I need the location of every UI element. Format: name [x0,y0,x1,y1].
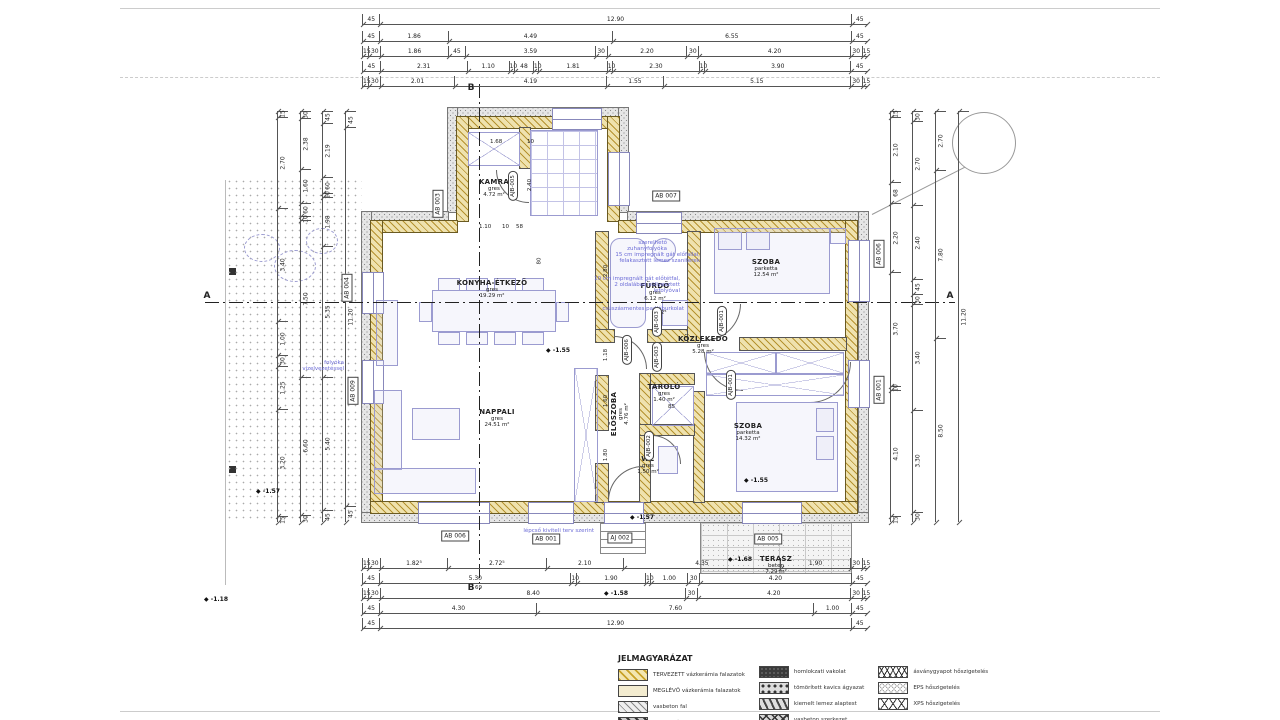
legend-label: kiemelt lemez alaptest [794,701,857,707]
dimension-segment: 45 [448,46,465,56]
door-tag: AJB-002 [644,431,654,461]
nightstand [830,228,846,244]
dimension-segment: 2.20 [891,203,901,271]
room-area: 12.54 m² [752,272,780,278]
level-marker: ◆ -1.58 [604,590,628,597]
dimension-segment: 1.10 [467,61,509,71]
legend-row: kiemelt lemez alaptest [759,698,864,710]
dimension-segment: 4.20 [697,588,850,598]
room-area: 6.12 m² [640,296,669,302]
dimension-value: 15 [863,48,868,55]
inline-dimension: 1.68 [490,139,502,145]
dimension-value: 15 [863,78,868,85]
legend-row: vasbeton fal [618,701,745,713]
dimension-value: 2.70 [280,156,287,169]
opening-tag: AB 009 [348,377,359,405]
gravel-swatch-icon [759,682,789,694]
dimension-segment: 3.70 [891,272,901,386]
dimension-segment: 1.82⁵ [380,558,447,568]
sofa [374,390,402,470]
dimension-segment: 30 [687,573,699,583]
dimension-value: 7.60 [537,605,813,612]
dimension-segment: 6.55 [612,31,851,41]
dimension-segment: 2.38 [301,118,311,168]
dimension-value: 12.90 [380,16,850,23]
inline-dimension: 85 [668,404,675,410]
door-tag: AJB-003 [652,342,662,372]
dimension-value: 30 [851,78,862,85]
opening-tag: AB 007 [652,191,680,202]
inline-dimension: 10 [527,139,534,145]
legend: JELMAGYARÁZAT TERVEZETT vázkerámia falaz… [618,654,988,720]
back-door [848,360,870,408]
legend-label: XPS hőszigetelés [913,701,960,707]
dimension-value: 6.55 [613,33,851,40]
dimension-value: 45 [363,16,379,23]
dimension-segment: 12.90 [379,618,850,628]
dimension-value: 45 [348,511,355,519]
dimension-value: 8.50 [938,424,945,437]
dimension-value: 45 [325,513,332,521]
interior-wall [740,338,846,350]
dimension-chain-vertical: 302.381.6060107.506.6030 [300,111,311,522]
dimension-segment: 30 [368,46,380,56]
room-area: 1.40 m² [648,397,681,403]
window [636,212,682,234]
dimension-value: 30 [688,575,699,582]
room-area: 4.76 m² [624,392,630,436]
dimension-value: 1.10 [468,63,509,70]
dimension-segment: 3.40 [913,304,923,409]
dimension-segment: 48 [514,61,533,71]
dimension-segment: 1.86 [380,46,448,56]
dimension-segment: 2.40 [913,205,923,280]
interior-wall [688,232,700,342]
dimension-segment: 15 [891,516,901,522]
door-tag: AJB-005 [508,171,518,201]
dimension-segment: 7.60 [536,603,813,613]
window [528,502,574,524]
dimension-chain-vertical: 302.702.4045303.403.3030 [912,111,923,522]
dimension-segment: 30 [913,512,923,522]
room-area: 19.29 m² [457,293,528,299]
dimension-segment: 30 [850,76,862,86]
dimension-value: 1.82⁵ [381,560,447,567]
chair [522,332,544,345]
door-tag: AJB-001 [717,306,727,336]
room-name: KAMRA [479,178,509,186]
dimension-value: 5.40 [325,438,332,451]
gray-hatch-swatch-icon [618,701,648,713]
dimension-segment: 45 [362,618,379,628]
dimension-segment: 6.60 [301,377,311,515]
dimension-segment: 30 [368,558,380,568]
dimension-value: 2.40 [915,236,922,249]
pantry-shelf [468,132,520,166]
tree-sketch-icon [244,234,280,262]
legend-label: ásványgyapot hőszigetelés [913,669,988,675]
dimension-segment: 45 [346,506,356,522]
dimension-segment: 30 [686,46,698,56]
dimension-value: 2.31 [381,63,467,70]
dimension-segment: 30 [368,76,380,86]
dimension-value: 15 [863,560,868,567]
dimension-value: 6.60 [303,440,310,453]
chair [494,332,516,345]
dimension-value: 4.49 [449,33,612,40]
dimension-value: 45 [363,63,380,70]
dimension-segment: 30 [301,515,311,522]
room-area: 1.50 m² [637,469,659,475]
section-mark: B [468,583,475,593]
window [552,108,602,130]
dimension-value: 45 [363,620,379,627]
chair [556,302,569,322]
coffee-table [412,408,460,440]
dimension-segment: 2.70 [913,121,923,205]
dimension-chain-horizontal: 451.864.496.5545 [362,31,868,42]
dimension-value: 30 [369,560,380,567]
dimension-chain-vertical: 4511.2045 [345,111,356,522]
legend-column-1: JELMAGYARÁZAT TERVEZETT vázkerámia falaz… [618,654,745,720]
interior-wall [694,392,704,502]
dimension-value: 45 [852,575,868,582]
dimension-segment: 1.00 [278,321,288,355]
dimension-segment: 11.20 [959,111,969,522]
dimension-value: 30 [915,514,922,522]
room-label: ELŐSZOBAgres4.76 m² [610,392,630,436]
dimension-segment: 2.70 [936,111,946,170]
pillow [816,436,834,460]
section-mark: A [204,291,211,301]
dimension-value: 60 [325,182,332,190]
dimension-value: 30 [369,590,380,597]
dimension-segment: 4.10 [891,390,901,516]
legend-label: homlokzati vakolat [794,669,846,675]
legend-column-3: ásványgyapot hőszigetelésEPS hőszigetelé… [878,654,988,720]
dimension-chain-horizontal: 454.307.601.0045 [362,603,868,614]
section-mark: A [947,291,954,301]
dimension-value: 3.59 [466,48,595,55]
dimension-value: 30 [596,48,607,55]
dimension-segment: 1.55 [606,76,663,86]
dimension-segment: 5.30 [379,573,570,583]
dimension-value: 1.55 [607,78,663,85]
dimension-value: 45 [851,63,868,70]
chair [419,302,432,322]
dimension-segment: 45 [362,573,379,583]
dimension-segment: 3.30 [913,410,923,512]
dimension-value: 2.20 [608,48,687,55]
dimension-segment: 15 [278,516,288,522]
room-label: KONYHA-ÉTKEZŐgres19.29 m² [457,279,528,299]
dimension-segment: 5.40 [323,377,333,510]
room-label: TERASZbeton7.29 m² [760,555,792,575]
dimension-value: 45 [348,116,355,124]
dimension-segment: 3.20 [278,409,288,516]
door-tag: AJB-003 [652,307,662,337]
dimension-value: 1.90 [577,575,645,582]
dimension-segment: 2.10 [891,117,901,182]
dimension-segment: 45 [851,618,868,628]
dimension-segment: 1.00 [813,603,850,613]
room-label: SZOBAparketta14.32 m² [734,422,762,442]
level-marker: ◆ -1.55 [744,477,768,484]
dimension-segment: 45 [362,603,379,613]
xps-swatch-icon [878,698,908,710]
dimension-segment: 30 [368,588,380,598]
dimension-segment: 2.72⁵ [447,558,546,568]
dimension-value: 2.70 [915,157,922,170]
inline-dimension: 1.10 [479,224,491,230]
dimension-segment: 2.70 [278,117,288,208]
wool-swatch-icon [878,666,908,678]
toilet [658,446,678,474]
dimension-segment: 5.35 [323,246,333,377]
legend-row: MEGLÉVŐ vázkerámia falazatok [618,685,745,697]
dimension-value: 2.70 [938,134,945,147]
dimension-value: 3.70 [893,322,900,335]
diag-dark-swatch-icon [759,698,789,710]
paper-edge-top [120,8,1160,9]
room-name: TERASZ [760,555,792,563]
dimension-value: 4.20 [698,590,850,597]
dimension-value: 2.19 [325,144,332,157]
dimension-segment: 4.49 [448,31,612,41]
dimension-segment: 1.98 [323,197,333,246]
dimension-value: 2.10 [547,560,623,567]
dimension-segment: 45 [851,573,868,583]
legend-title: JELMAGYARÁZAT [618,654,745,663]
dimension-value: 3.40 [280,258,287,271]
dimension-value: 2.38 [303,137,310,150]
dimension-chain-horizontal: 4512.9045 [362,618,868,629]
dimension-value: 3.40 [915,351,922,364]
opening-tag: AB 001 [874,376,885,404]
dimension-chain-vertical: 152.10682.203.70104.1015 [890,111,901,522]
dimension-segment: 45 [323,510,333,522]
level-marker: ◆ -1.57 [256,488,280,495]
dimension-segment: 7.80 [936,170,946,339]
dimension-value: 2.01 [381,78,454,85]
dimension-value: 4.10 [893,447,900,460]
dimension-value: 5.35 [325,306,332,319]
dimension-chain-horizontal: 4512.9045 [362,14,868,25]
door-tag: AJB-001 [726,370,736,400]
dimension-value: 45 [363,33,379,40]
dimension-chain-vertical: 152.703.401.00301.253.2015 [277,111,288,522]
opening-tag: AB 004 [342,274,353,302]
dimension-chain-horizontal: 452.311.101048101.81102.30103.9045 [362,61,868,72]
room-name: NAPPALI [479,408,514,416]
window [848,240,870,302]
dimension-value: 4.19 [455,78,606,85]
legend-row: XPS hőszigetelés [878,698,988,710]
annotation-note: folyóka vízelvezetéssel [286,360,344,372]
dimension-segment: 1.00 [650,573,687,583]
dimension-segment: 4.30 [379,603,536,613]
room-name: TÁROLÓ [648,383,681,391]
dimension-segment: 45 [850,61,868,71]
dimension-value: 1.86 [380,33,448,40]
dimension-value: 30 [686,590,697,597]
legend-label: vasbeton fal [653,704,687,710]
room-area: 5.28 m² [678,349,728,355]
dimension-segment: 7.50 [301,220,311,377]
dimension-segment: 30 [850,558,862,568]
dimension-value: 45 [363,605,379,612]
opening-tag: AB 003 [433,190,444,218]
annotation-note: szerelhető zuhanyfolyóka [597,240,667,252]
dimension-value: 1.81 [539,63,606,70]
tv-cabinet [376,300,398,366]
dimension-segment: 1.86 [379,31,448,41]
room-name: SZOBA [734,422,762,430]
dimension-segment: 15 [862,76,868,86]
legend-column-2: homlokzati vakolattömörített kavics ágya… [759,654,864,720]
dimension-value: 45 [852,33,868,40]
dimension-segment: 2.31 [380,61,467,71]
dimension-value: 12.90 [380,620,850,627]
room-label: TÁROLÓgres1.40 m² [648,383,681,403]
built-in-wardrobe [574,368,598,502]
opening-tag: AB 006 [874,240,885,268]
garden-paving [226,178,362,520]
legend-label: MEGLÉVŐ vázkerámia falazatok [653,688,741,694]
dimension-value: 5.15 [664,78,850,85]
legend-row: ásványgyapot hőszigetelés [878,666,988,678]
section-line-a [205,302,955,303]
dimension-value: 4.30 [380,605,536,612]
dimension-value: 30 [851,560,862,567]
dimension-segment: 4.19 [454,76,606,86]
interior-wall [596,330,614,342]
opening-tag: AJ 002 [607,533,632,544]
room-area: 24.51 m² [479,422,514,428]
dimension-segment: 8.50 [936,338,946,522]
dimension-value: 45 [363,575,379,582]
legend-row: EPS hőszigetelés [878,682,988,694]
dimension-segment: 45 [851,603,868,613]
dimension-value: 30 [369,48,380,55]
dimension-segment: 3.90 [704,61,850,71]
window [608,152,630,206]
kitchen-counter [530,130,598,216]
dimension-segment: 2.19 [323,123,333,177]
room-name: SZOBA [752,258,780,266]
dimension-segment: 30 [595,46,607,56]
dimension-value: 68 [893,189,900,197]
dimension-value: 3.90 [705,63,850,70]
dimension-value: 8.40 [381,590,685,597]
door-tag: AJB-006 [622,335,632,365]
window [742,502,802,524]
dimension-value: 15 [280,516,287,524]
wall-insulation [448,108,457,212]
dimension-segment: 8.40 [380,588,685,598]
yellow-hatch-swatch-icon [618,669,648,681]
legend-label: TERVEZETT vázkerámia falazatok [653,672,745,678]
pillow [746,232,770,250]
dimension-segment: 1.60 [301,169,311,203]
dimension-segment: 2.30 [612,61,699,71]
dimension-value: 45 [915,284,922,292]
dimension-chain-horizontal: 15301.86453.59302.20304.203015 [362,46,868,57]
opening-tag: AB 001 [532,534,560,545]
dimension-chain-vertical: 2.707.808.50 [935,111,946,522]
legend-row: homlokzati vakolat [759,666,864,678]
dimension-segment: 45 [851,31,868,41]
chair [438,332,460,345]
dimension-value: 30 [369,78,380,85]
pillow [718,232,742,250]
inline-dimension: 1.80 [603,449,609,461]
dimension-value: 11.20 [961,308,968,325]
beige-swatch-icon [618,685,648,697]
dimension-value: 15 [893,516,900,524]
dimension-value: 30 [687,48,698,55]
dimension-value: 2.20 [893,231,900,244]
room-label: SZOBAparketta12.54 m² [752,258,780,278]
dimension-segment: 5.15 [663,76,850,86]
dimension-segment: 45 [362,61,380,71]
pillow [816,408,834,432]
dimension-segment: 2.01 [380,76,454,86]
dimension-value: 11.20 [348,308,355,325]
dimension-value: 7.50 [303,292,310,305]
room-area: 4.72 m² [479,192,509,198]
dimension-segment: 3.40 [278,208,288,322]
sofa [374,468,476,494]
dimension-segment: 2.20 [607,46,687,56]
dimension-segment: 15 [862,46,868,56]
dimension-value: 15 [863,590,868,597]
annotation-note: 15 cm impregnált gát előfallal, felakasz… [612,252,700,264]
dimension-value: 1.00 [651,575,687,582]
dimension-value: 2.30 [613,63,699,70]
dimension-value: 7.80 [938,248,945,261]
dimension-value: 45 [852,620,868,627]
dimension-value: 5.30 [380,575,570,582]
dimension-segment: 3.59 [465,46,595,56]
dimension-value: 3.20 [280,456,287,469]
inline-dimension: 69 [475,585,482,591]
dimension-segment: 1.81 [538,61,606,71]
dimension-value: 2.72⁵ [448,560,546,567]
dimension-segment: 30 [850,46,862,56]
eps-swatch-icon [878,682,908,694]
dimension-value: 30 [303,515,310,523]
dimension-value: 4.35 [624,560,781,567]
legend-row: vasbeton szerkezet [759,714,864,720]
dimension-segment: 4.20 [698,46,850,56]
dimension-segment: 11.20 [346,127,356,506]
dimension-value: 2.10 [893,143,900,156]
dimension-segment: 15 [862,558,868,568]
dimension-segment: 45 [362,31,379,41]
dimension-value: 1.00 [280,332,287,345]
dimension-value: 4.20 [700,575,851,582]
dimension-segment: 45 [851,14,868,24]
dimension-value: 3.30 [915,455,922,468]
opening-tag: AB 005 [754,534,782,545]
floor-plan-canvas: JELMAGYARÁZAT TERVEZETT vázkerámia falaz… [0,0,1280,720]
interior-wall [520,128,530,168]
dimension-value: 48 [515,63,533,70]
wardrobe [776,352,844,374]
dimension-value: 1.98 [325,215,332,228]
annotation-note: csúszásmentes padlóburkolat [600,306,684,312]
